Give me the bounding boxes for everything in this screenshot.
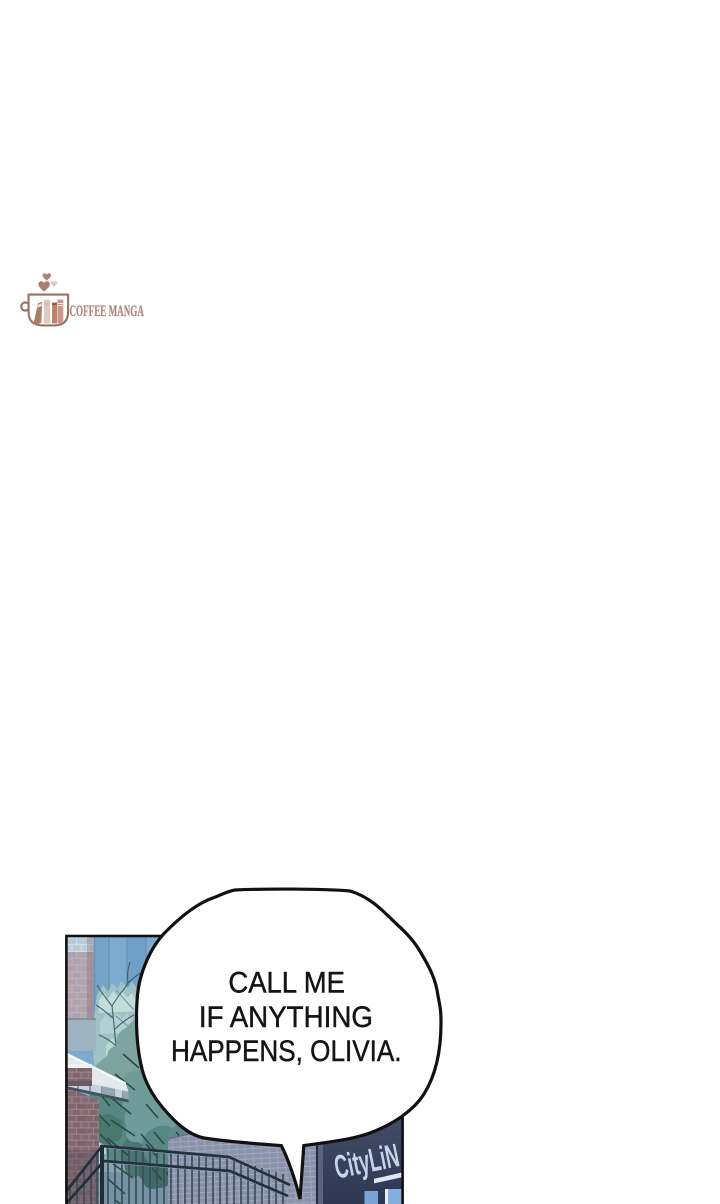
svg-text:COFFEE MANGA: COFFEE MANGA [70,303,145,320]
svg-text:CALL ME: CALL ME [228,967,345,1000]
svg-text:IF ANYTHING: IF ANYTHING [199,1001,373,1034]
svg-text:HAPPENS, OLIVIA.: HAPPENS, OLIVIA. [171,1035,402,1068]
